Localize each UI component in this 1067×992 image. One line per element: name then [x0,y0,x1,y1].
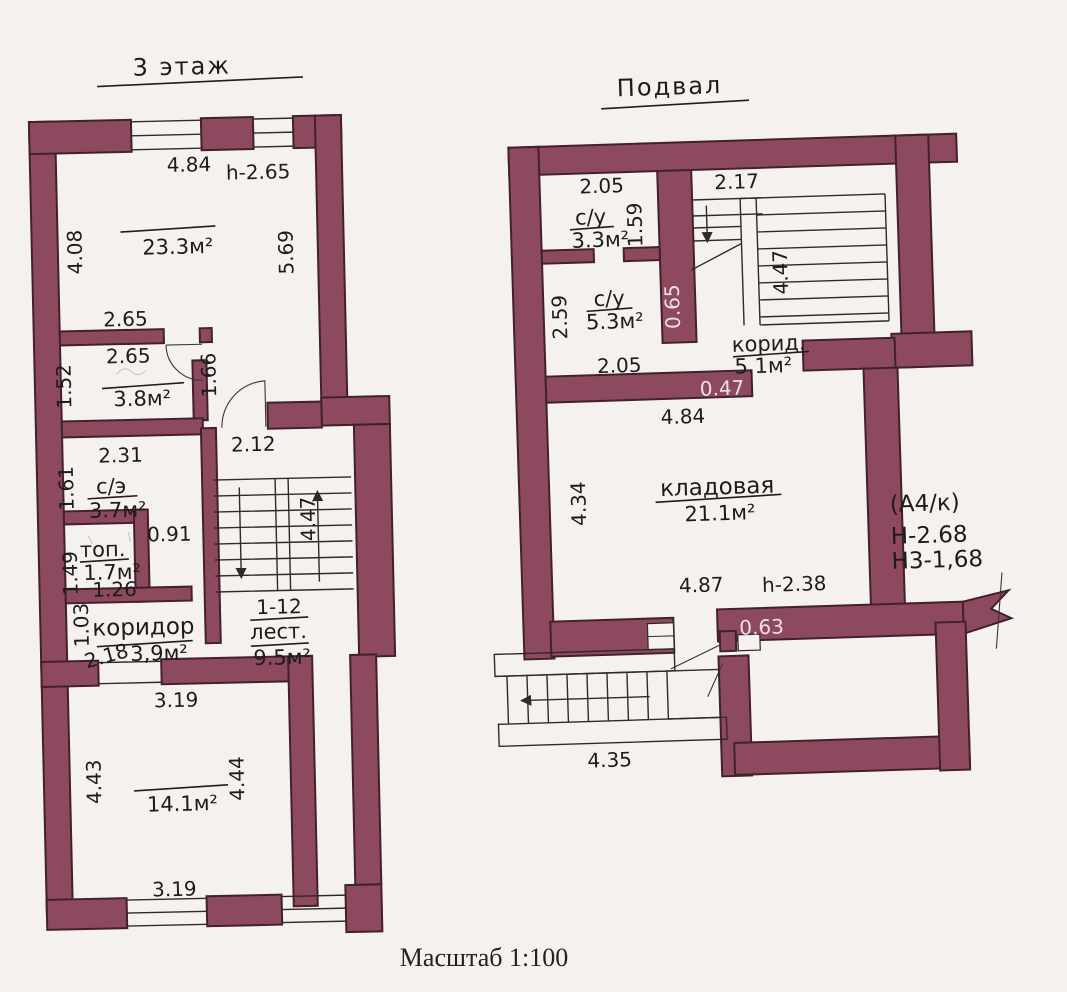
basement-title: Подвал [616,71,722,102]
annotation-line: Н3-1,68 [891,546,983,575]
wall-thickness-label: 0.63 [739,614,784,639]
floor3-labels: 3 этаж 4.84 h-2.65 4.08 23.3м² 5.69 2.65… [44,50,328,904]
dim-label: 4.84 [660,404,705,429]
room-name-label: с/у [593,286,625,311]
dim-label: 4.34 [566,481,591,526]
wall-break-symbol [963,590,1012,633]
dim-label: 2.59 [547,295,572,340]
room-name-label: топ. [80,537,126,562]
ceiling-height-label: h-2.65 [226,159,291,184]
room-area-label: 5.3м² [586,309,644,335]
room-area-label: 3.8м² [113,386,171,411]
floor3-plan: 3 этаж 4.84 h-2.65 4.08 23.3м² 5.69 2.65… [27,48,401,939]
room-area-label: 14.1м² [147,791,219,817]
dim-label: 2.05 [597,353,642,378]
dim-label: 2.12 [231,432,276,457]
dim-label: 3.19 [154,687,199,712]
room-area-label: 3.3м² [571,227,629,253]
basement-plan: Подвал 2.05 2.17 с/у 3.3м² 1.59 с/у 5.3м… [476,62,1016,784]
room-name-label: с/э [96,474,127,499]
dim-label: 4.35 [587,747,632,772]
dim-label: 4.87 [679,572,724,597]
dim-label: 2.31 [98,443,143,468]
room-area-label: 23.3м² [142,234,214,260]
annotation-line: Н-2.68 [890,522,968,550]
room-name-label: лест. [250,619,307,644]
room-name-label: с/у [575,205,607,230]
scanned-floor-plan-page: 3 этаж 4.84 h-2.65 4.08 23.3м² 5.69 2.65… [0,0,1067,992]
floor3-stairs [213,477,354,592]
dim-label: 2.05 [579,173,624,198]
dim-label: 4.47 [295,496,320,541]
dim-label: 0.91 [147,522,192,547]
dim-label: 1.26 [92,577,137,602]
floor3-title: 3 этаж [132,52,231,82]
dim-label: 4.47 [768,250,793,295]
dim-label: 4.08 [62,230,87,275]
dim-label: 4.43 [81,759,106,804]
room-area-label: 9.5м² [253,645,311,670]
ceiling-height-label: h-2.38 [762,571,827,597]
scale-label: Масштаб 1:100 [400,943,568,972]
dim-label: 1.61 [54,466,79,511]
dim-label: 4.84 [166,152,211,177]
wall-thickness-label: 0.65 [660,284,685,329]
floor-plan-drawing: 3 этаж 4.84 h-2.65 4.08 23.3м² 5.69 2.65… [0,0,1067,992]
basement-ext-stairs [494,647,727,746]
dim-label: 4.44 [224,756,249,801]
dim-label: 1.03 [69,603,94,648]
dim-label: 3.19 [152,877,197,902]
dim-label: 2.65 [103,306,148,331]
stair-steps-label: 1-12 [256,594,302,619]
dim-label: 1.49 [58,551,83,596]
dim-label: 2.65 [106,343,151,368]
dim-label: 1.66 [196,353,221,398]
dim-label: 1.59 [622,202,647,247]
dim-label: 2.17 [714,169,759,194]
room-name-label: коридор [92,613,195,641]
wall-thickness-label: 0.47 [699,375,744,400]
dim-label: 5.69 [273,230,298,275]
dim-label: 1.52 [51,364,76,409]
room-area-label: 21.1м² [684,500,756,526]
room-area-label: 3,9м² [130,641,188,666]
annotation-line: (А4/к) [889,490,960,518]
room-area-label: 3.7м² [89,498,147,523]
